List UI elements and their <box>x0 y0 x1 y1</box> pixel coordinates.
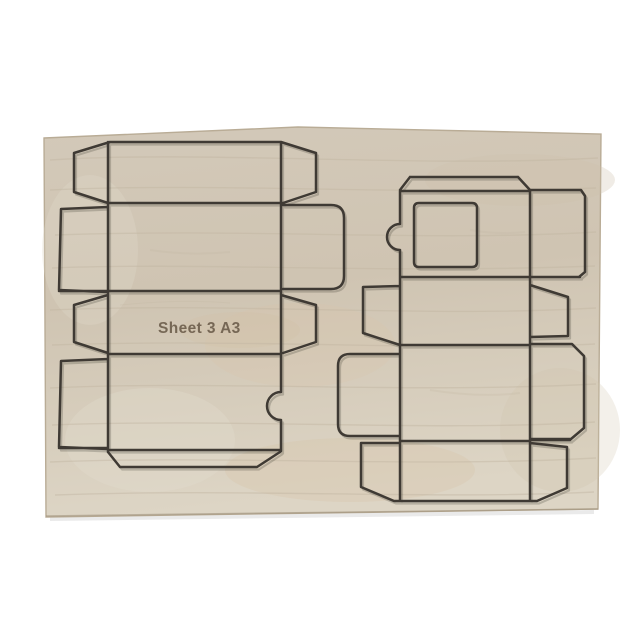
die-board-photo: Sheet 3 A3 <box>0 0 640 640</box>
photo-canvas: Sheet 3 A3 <box>0 0 640 640</box>
engraved-sheet-label: Sheet 3 A3 <box>158 320 241 337</box>
